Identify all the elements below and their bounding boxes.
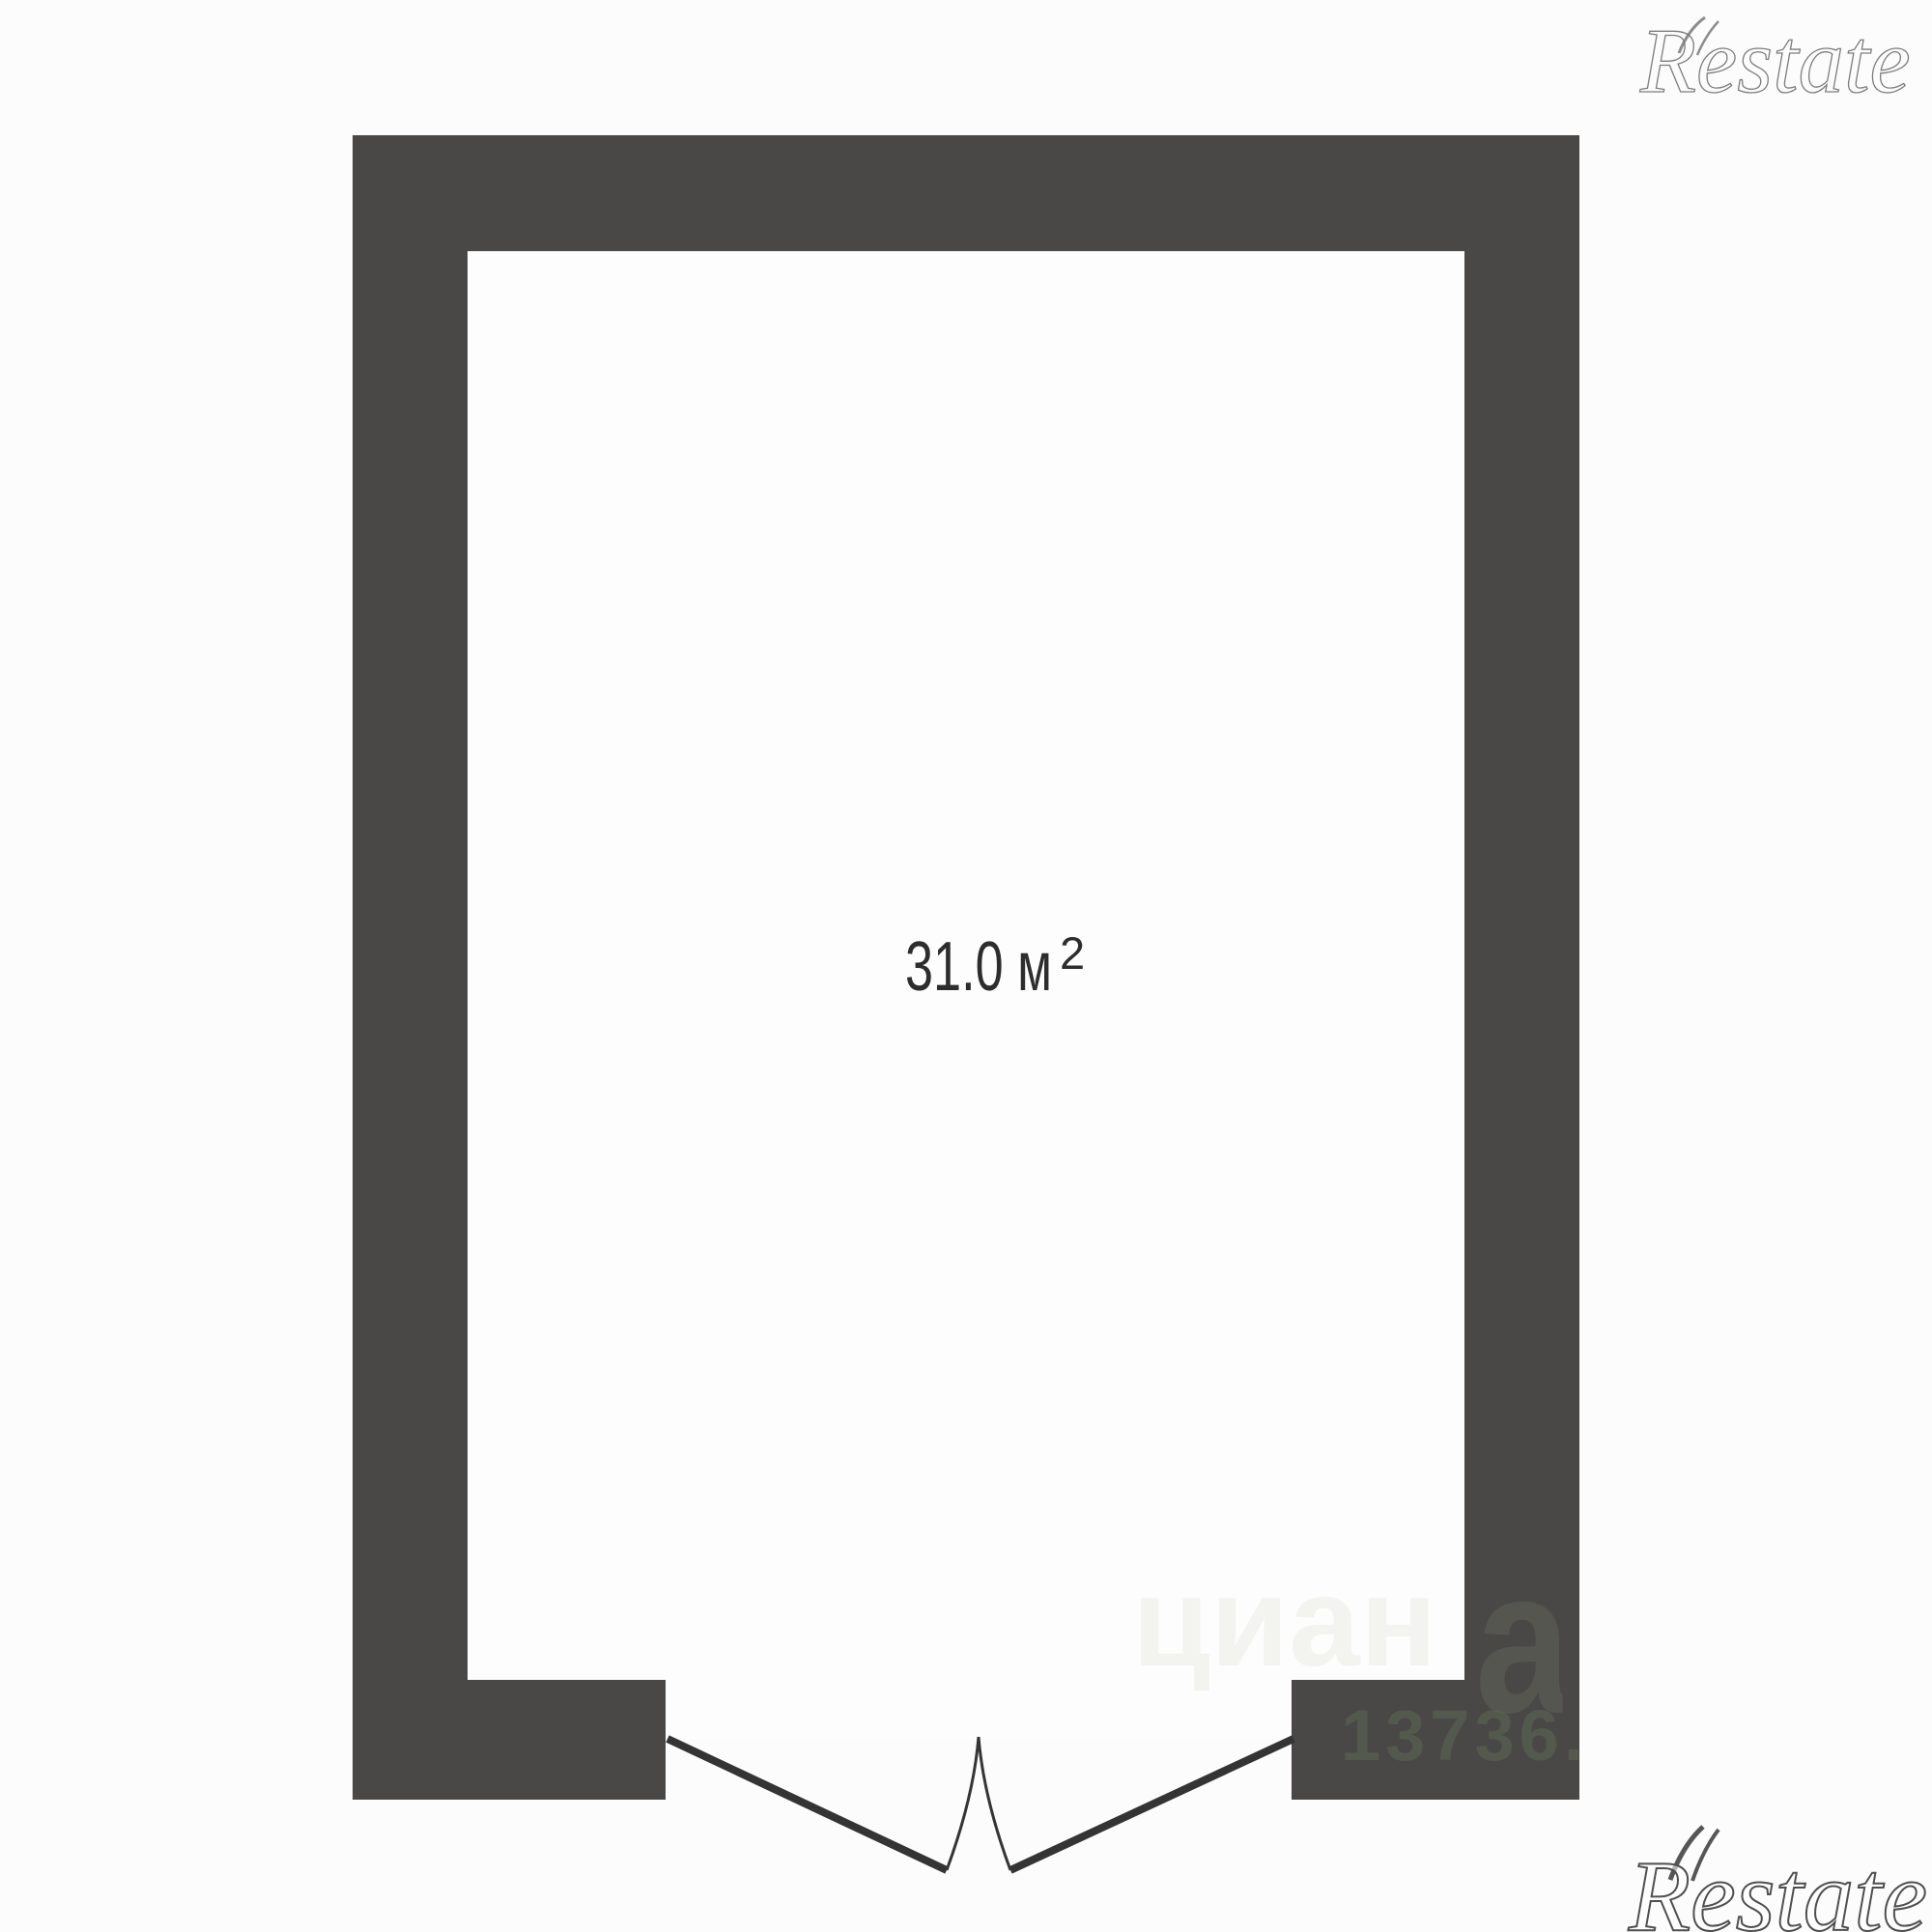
svg-text:13736.: 13736. xyxy=(1341,1695,1588,1776)
svg-text:циан: циан xyxy=(1132,1550,1436,1692)
svg-text:Restate: Restate xyxy=(1628,1839,1927,1932)
svg-text:2: 2 xyxy=(1060,927,1085,979)
svg-text:Restate: Restate xyxy=(1639,10,1911,112)
svg-text:31.0 м: 31.0 м xyxy=(905,928,1052,1006)
